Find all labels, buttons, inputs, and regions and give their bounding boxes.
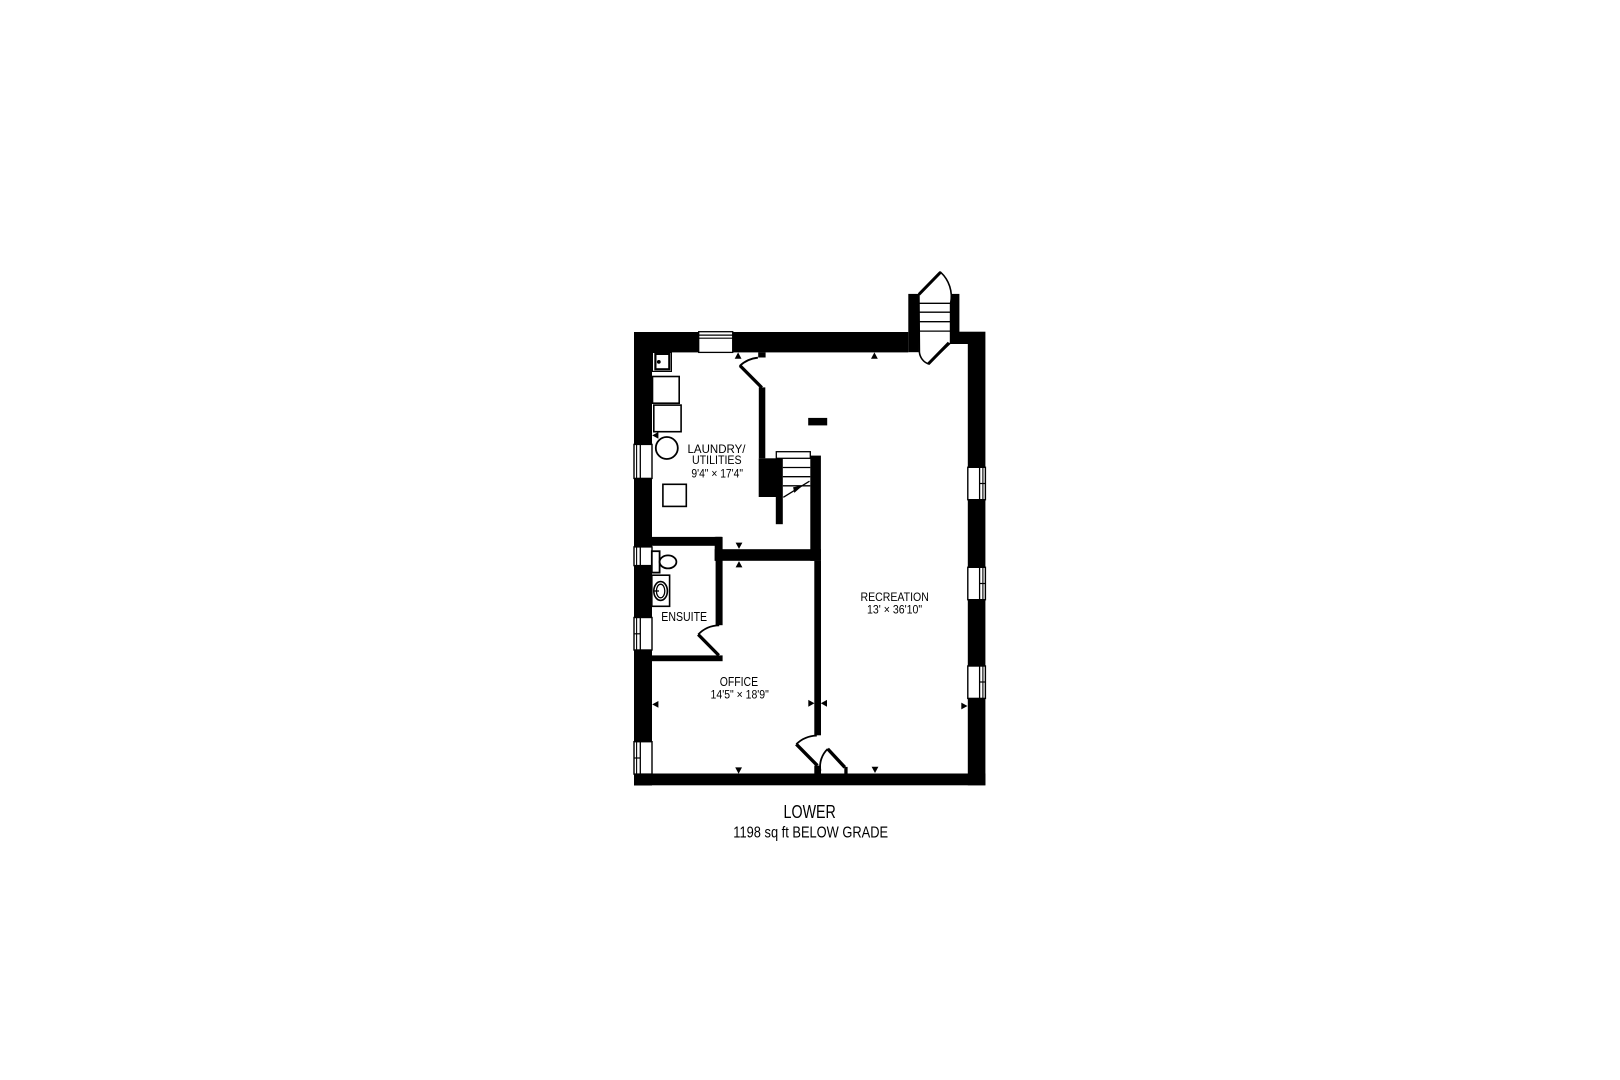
svg-text:1198 sq ft BELOW GRADE: 1198 sq ft BELOW GRADE: [733, 825, 888, 842]
svg-text:RECREATION: RECREATION: [861, 590, 929, 604]
svg-text:14'5" × 18'9": 14'5" × 18'9": [711, 689, 769, 701]
svg-text:LOWER: LOWER: [784, 802, 836, 822]
svg-text:UTILITIES: UTILITIES: [692, 453, 742, 467]
svg-text:OFFICE: OFFICE: [720, 674, 759, 689]
svg-text:ENSUITE: ENSUITE: [661, 609, 707, 624]
svg-text:9'4" × 17'4": 9'4" × 17'4": [691, 469, 743, 481]
svg-text:13' × 36'10": 13' × 36'10": [867, 605, 922, 617]
